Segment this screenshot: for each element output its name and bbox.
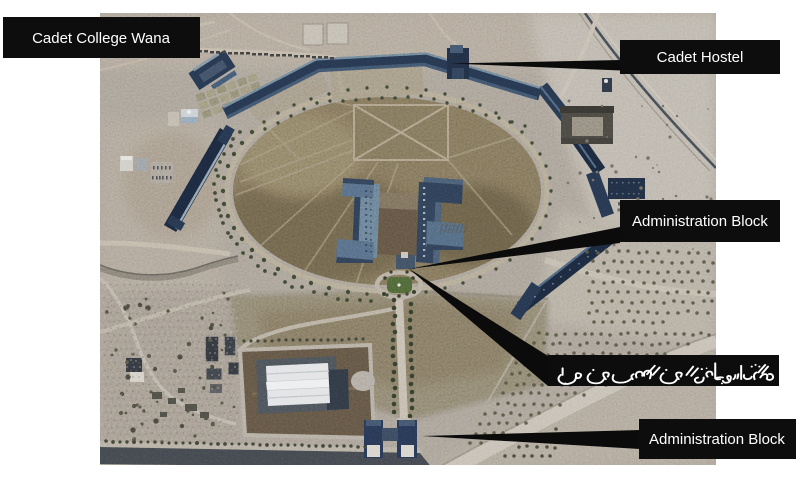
svg-text:Cadet College Wana: Cadet College Wana [32,30,171,47]
svg-text:Administration Block: Administration Block [632,213,768,230]
svg-text:Cadet Hostel: Cadet Hostel [657,49,744,66]
svg-text:Administration Block: Administration Block [649,431,785,448]
